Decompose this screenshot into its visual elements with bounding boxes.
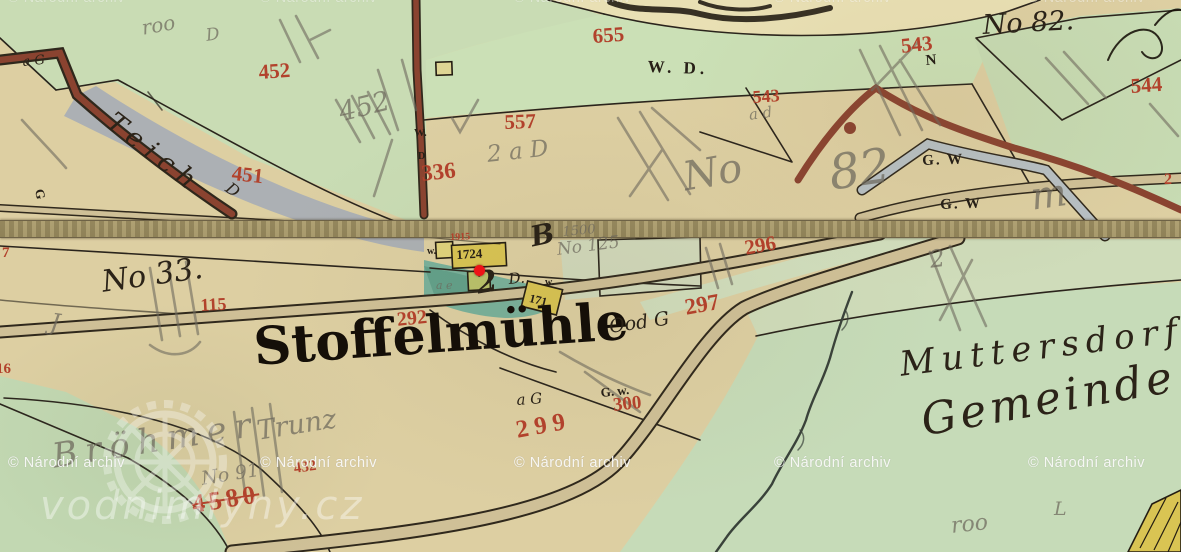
map-label: D: [205, 26, 221, 45]
map-label: 2 a D: [486, 138, 549, 167]
map-label: Gemeinde: [918, 355, 1179, 443]
map-label: Muttersdorf: [898, 313, 1181, 382]
map-label: 336: [420, 158, 457, 184]
map-label: w.: [427, 247, 436, 257]
map-label: 2: [928, 246, 946, 272]
map-label: G: [33, 188, 48, 200]
map-label: 655: [592, 24, 625, 47]
map-label: G. W: [940, 197, 982, 213]
map-label: 82: [826, 141, 893, 197]
map-label: 4580: [190, 481, 261, 517]
map-label: 299: [514, 408, 573, 442]
map-label: Ood G: [608, 310, 670, 337]
map-label: J: [49, 310, 62, 335]
map-label: roo: [950, 512, 989, 538]
map-label: 544: [1130, 74, 1163, 97]
map-label: 1915: [450, 232, 470, 243]
map-label: Stoffelmühle: [252, 296, 630, 374]
map-label: m: [1028, 173, 1069, 216]
map-label: No 125: [556, 234, 621, 259]
map-label: 1724: [456, 247, 483, 261]
map-label: 115: [200, 295, 227, 314]
map-label: No: [680, 148, 745, 198]
map-label: Bröhmer: [50, 407, 261, 473]
map-label: No 91: [200, 461, 261, 489]
map-label: G. w.: [600, 383, 630, 399]
map-label: a G: [22, 54, 46, 69]
map-label: 432: [293, 459, 317, 477]
map-label: 1500: [562, 223, 596, 239]
map-label: Trunz: [255, 405, 338, 444]
map-label: 452: [336, 88, 393, 127]
map-label: 297: [683, 290, 721, 319]
map-label: a G: [516, 391, 543, 408]
map-label: 2: [1164, 172, 1172, 188]
map-label: 16: [0, 362, 11, 377]
map-label: No 33.: [100, 254, 205, 298]
map-label: 557: [504, 111, 536, 133]
map-label: W.: [414, 128, 427, 139]
map-label: 543: [752, 86, 780, 106]
map-label: W. D.: [647, 58, 708, 77]
map-label: 543: [900, 33, 934, 57]
map-label: 171: [528, 292, 548, 308]
map-label: roo: [140, 12, 177, 38]
map-label: 300: [612, 393, 642, 415]
map-label: 292: [396, 307, 428, 330]
map-label: a e: [436, 280, 453, 291]
map-label: a d: [748, 105, 773, 123]
map-label: No 82.: [982, 7, 1075, 39]
map-label: D: [223, 180, 243, 200]
map-label: 452: [258, 60, 291, 83]
map-label: B: [528, 219, 557, 251]
map-label: 296: [743, 233, 778, 259]
map-label: L: [1054, 500, 1067, 519]
label-layer: 4524516555573365435435442962972922993001…: [0, 0, 1181, 552]
map-label: 451: [231, 163, 265, 187]
map-label: 7: [2, 246, 10, 261]
map-label: w.: [545, 278, 554, 288]
map-label: N: [925, 53, 937, 69]
map-label: D.: [508, 271, 526, 287]
map-canvas[interactable]: 4524516555573365435435442962972922993001…: [0, 0, 1181, 552]
map-label: D: [418, 152, 425, 162]
map-label: G. W: [922, 153, 964, 169]
map-marker-dot[interactable]: [474, 265, 485, 276]
map-label: Teich: [101, 108, 207, 199]
